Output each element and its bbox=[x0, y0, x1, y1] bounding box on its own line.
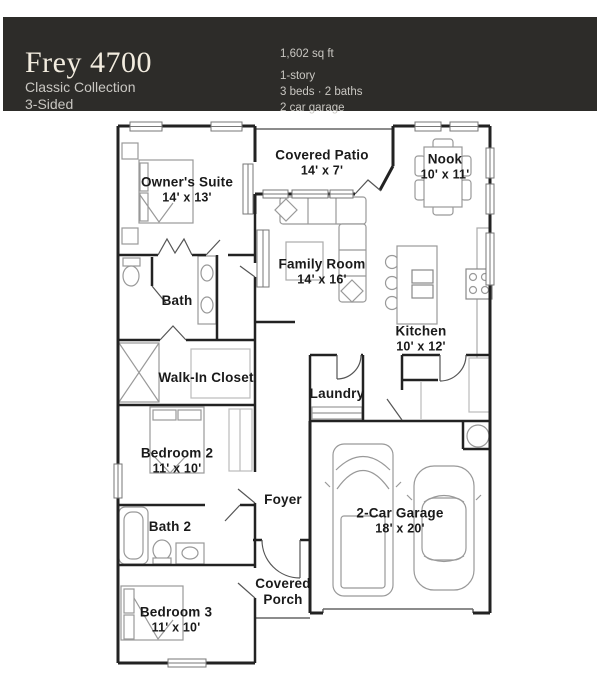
room-label-laundry: Laundry bbox=[310, 386, 365, 402]
door-leaf-icon bbox=[238, 489, 255, 503]
room-label-bedroom-3: Bedroom 3 11' x 10' bbox=[140, 604, 212, 635]
sink-vanity-icon bbox=[176, 543, 204, 564]
room-label-walk-in-closet: Walk-In Closet bbox=[158, 370, 253, 386]
room-label-garage: 2-Car Garage 18' x 20' bbox=[356, 505, 443, 536]
patio-door-icon bbox=[355, 180, 381, 194]
room-label-covered-porch: Covered Porch bbox=[248, 576, 318, 608]
room-label-covered-patio: Covered Patio 14' x 7' bbox=[275, 147, 368, 178]
mud-bench-icon bbox=[469, 358, 490, 412]
double-vanity-icon bbox=[198, 256, 216, 324]
door-leaf-icon bbox=[387, 399, 402, 420]
door-arc-icon bbox=[440, 355, 466, 381]
front-door-icon bbox=[262, 540, 300, 578]
room-label-nook: Nook 10' x 11' bbox=[421, 151, 470, 182]
room-label-bath-2: Bath 2 bbox=[149, 519, 191, 535]
washer-dryer-icon bbox=[312, 407, 362, 419]
water-heater-icon bbox=[467, 425, 489, 447]
room-label-bedroom-2: Bedroom 2 11' x 10' bbox=[141, 445, 213, 476]
room-label-foyer: Foyer bbox=[264, 492, 302, 508]
toilet-icon bbox=[123, 258, 140, 286]
floor-plan-page: { "header": { "title": "Frey 4700", "col… bbox=[0, 0, 600, 674]
toilet-icon bbox=[153, 540, 171, 564]
room-label-owners-suite: Owner's Suite 14' x 13' bbox=[141, 174, 233, 205]
room-label-kitchen: Kitchen 10' x 12' bbox=[396, 323, 447, 354]
door-leaf-icon bbox=[160, 326, 186, 340]
door-arc-icon bbox=[337, 355, 361, 379]
door-leaf-icon bbox=[240, 266, 255, 277]
door-leaf-icon bbox=[206, 240, 220, 255]
bathtub-icon bbox=[119, 507, 148, 564]
closet-shelving-icon bbox=[229, 409, 252, 471]
shower-icon bbox=[119, 343, 159, 402]
floor-plan-drawing bbox=[0, 0, 600, 674]
double-door-icon bbox=[158, 239, 192, 255]
room-label-family-room: Family Room 14' x 16' bbox=[279, 256, 366, 287]
room-label-bath: Bath bbox=[162, 293, 193, 309]
door-leaf-icon bbox=[225, 505, 240, 521]
